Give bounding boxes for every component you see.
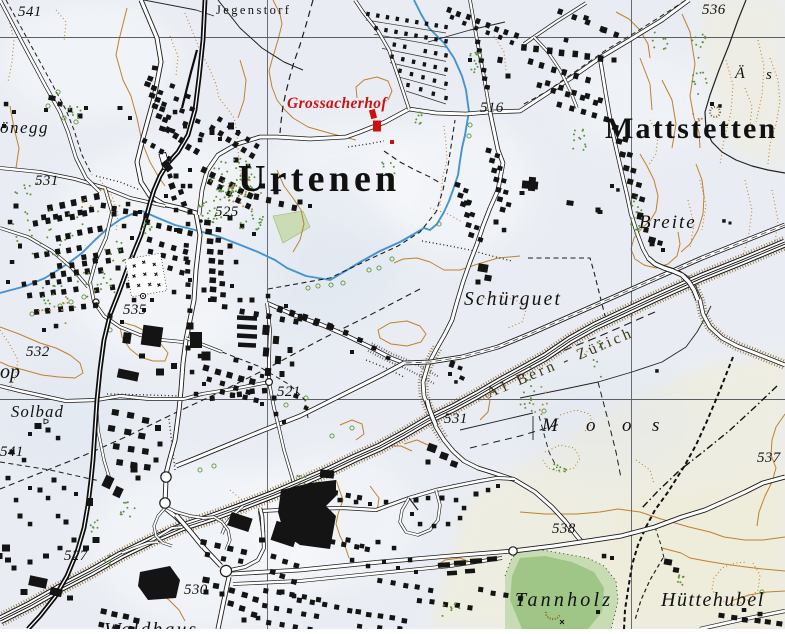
svg-text:Breite: Breite bbox=[639, 212, 697, 233]
svg-text:Waldhaus: Waldhaus bbox=[104, 619, 198, 629]
svg-text:s: s bbox=[652, 415, 659, 436]
svg-text:531: 531 bbox=[444, 411, 468, 427]
svg-text:525: 525 bbox=[215, 204, 239, 220]
svg-text:Schürguet: Schürguet bbox=[464, 289, 562, 310]
svg-text:Tannholz: Tannholz bbox=[515, 589, 613, 611]
svg-text:o: o bbox=[622, 415, 632, 436]
svg-text:o: o bbox=[586, 415, 596, 436]
svg-text:531: 531 bbox=[35, 173, 59, 189]
svg-text:537: 537 bbox=[757, 450, 782, 466]
svg-text:Grossacherhof: Grossacherhof bbox=[287, 95, 388, 112]
svg-text:521: 521 bbox=[277, 384, 301, 400]
svg-text:Solbad: Solbad bbox=[11, 402, 64, 421]
svg-text:541: 541 bbox=[18, 4, 42, 20]
svg-text:s: s bbox=[766, 67, 772, 83]
svg-text:527: 527 bbox=[64, 548, 89, 564]
svg-text:M: M bbox=[541, 415, 559, 436]
svg-text:530: 530 bbox=[184, 582, 208, 598]
svg-text:535: 535 bbox=[123, 302, 147, 318]
svg-text:Urtenen: Urtenen bbox=[238, 158, 400, 200]
svg-text:532: 532 bbox=[26, 344, 50, 360]
svg-text:538: 538 bbox=[552, 521, 576, 537]
svg-text:516: 516 bbox=[480, 100, 504, 116]
svg-text:536: 536 bbox=[702, 2, 726, 18]
svg-text:Ä: Ä bbox=[734, 64, 745, 82]
svg-text:op: op bbox=[0, 361, 20, 383]
svg-text:541: 541 bbox=[0, 444, 24, 460]
svg-text:önegg: önegg bbox=[0, 118, 49, 137]
svg-text:Jegenstorf: Jegenstorf bbox=[216, 3, 291, 17]
svg-text:Mattstetten: Mattstetten bbox=[605, 112, 777, 145]
svg-text:Hüttehubel: Hüttehubel bbox=[660, 589, 765, 611]
